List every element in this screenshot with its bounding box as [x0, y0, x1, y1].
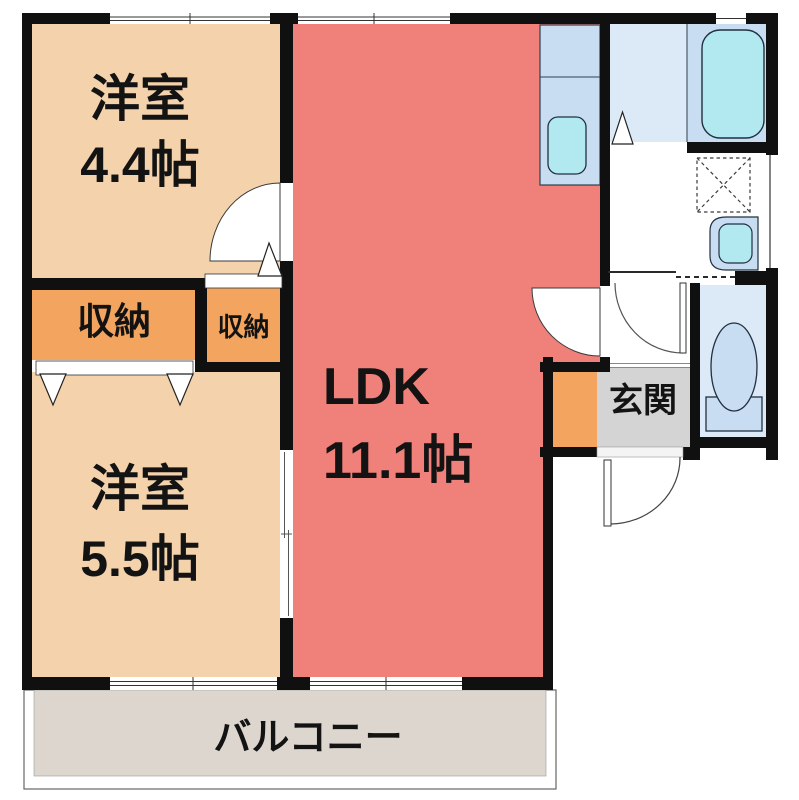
window-bottom-room55 [110, 677, 277, 690]
closet-left-opening [36, 361, 193, 375]
wall-ldk-right [543, 357, 553, 690]
washroom-sliding-door [608, 272, 737, 277]
ldk-name: LDK [323, 350, 543, 424]
wall-toilet-bottom [690, 437, 778, 448]
room-5-5-size: 5.5帖 [30, 524, 250, 594]
door-leaf-hallway [680, 283, 686, 353]
opening-room44-door [280, 183, 293, 261]
vanity-sink-icon [719, 224, 752, 263]
entrance-sill [597, 447, 683, 457]
balcony-label: バルコニー [148, 716, 468, 760]
entrance-door-leaf [604, 460, 611, 526]
shoe-cabinet [552, 372, 597, 447]
window-top-left [110, 13, 270, 24]
closet-right-label: 収納 [206, 312, 281, 342]
window-bottom-ldk [310, 677, 462, 690]
window-top-ldk [298, 13, 450, 24]
hallway-floor [610, 283, 690, 368]
wall-closet-bottom [200, 362, 293, 372]
wall-toilet-left [690, 283, 700, 447]
toilet-icon [711, 323, 757, 411]
wall-entrance-post [683, 447, 700, 460]
entrance-door-swing [611, 457, 680, 524]
ldk-label: LDK 11.1帖 [323, 350, 543, 498]
wall-entrance-top [540, 362, 610, 372]
kitchen-sink-icon [548, 117, 586, 174]
room-4-4-size: 4.4帖 [30, 132, 250, 198]
room-5-5-label: 洋室 5.5帖 [30, 454, 250, 594]
ldk-size: 11.1帖 [323, 424, 543, 498]
closet-left-label: 収納 [34, 302, 194, 342]
opening-ldk-door [600, 286, 610, 357]
entrance-label: 玄関 [598, 382, 688, 420]
room-4-4-label: 洋室 4.4帖 [30, 66, 250, 198]
wall-closet-top [22, 278, 207, 290]
window-bathroom [716, 13, 746, 24]
wall-bottom [22, 677, 553, 690]
window-washroom-right [766, 155, 778, 268]
bathtub-icon [702, 30, 764, 138]
wall-entrance-bottom [540, 447, 597, 457]
wall-bath-bottom [687, 142, 766, 153]
floor-plan: 洋室 4.4帖 収納 収納 洋室 5.5帖 LDK 11.1帖 玄関 バルコニー [0, 0, 799, 800]
wall-washroom-bottom [735, 271, 766, 285]
room-4-4-name: 洋室 [30, 66, 250, 132]
room-5-5-name: 洋室 [30, 454, 250, 524]
